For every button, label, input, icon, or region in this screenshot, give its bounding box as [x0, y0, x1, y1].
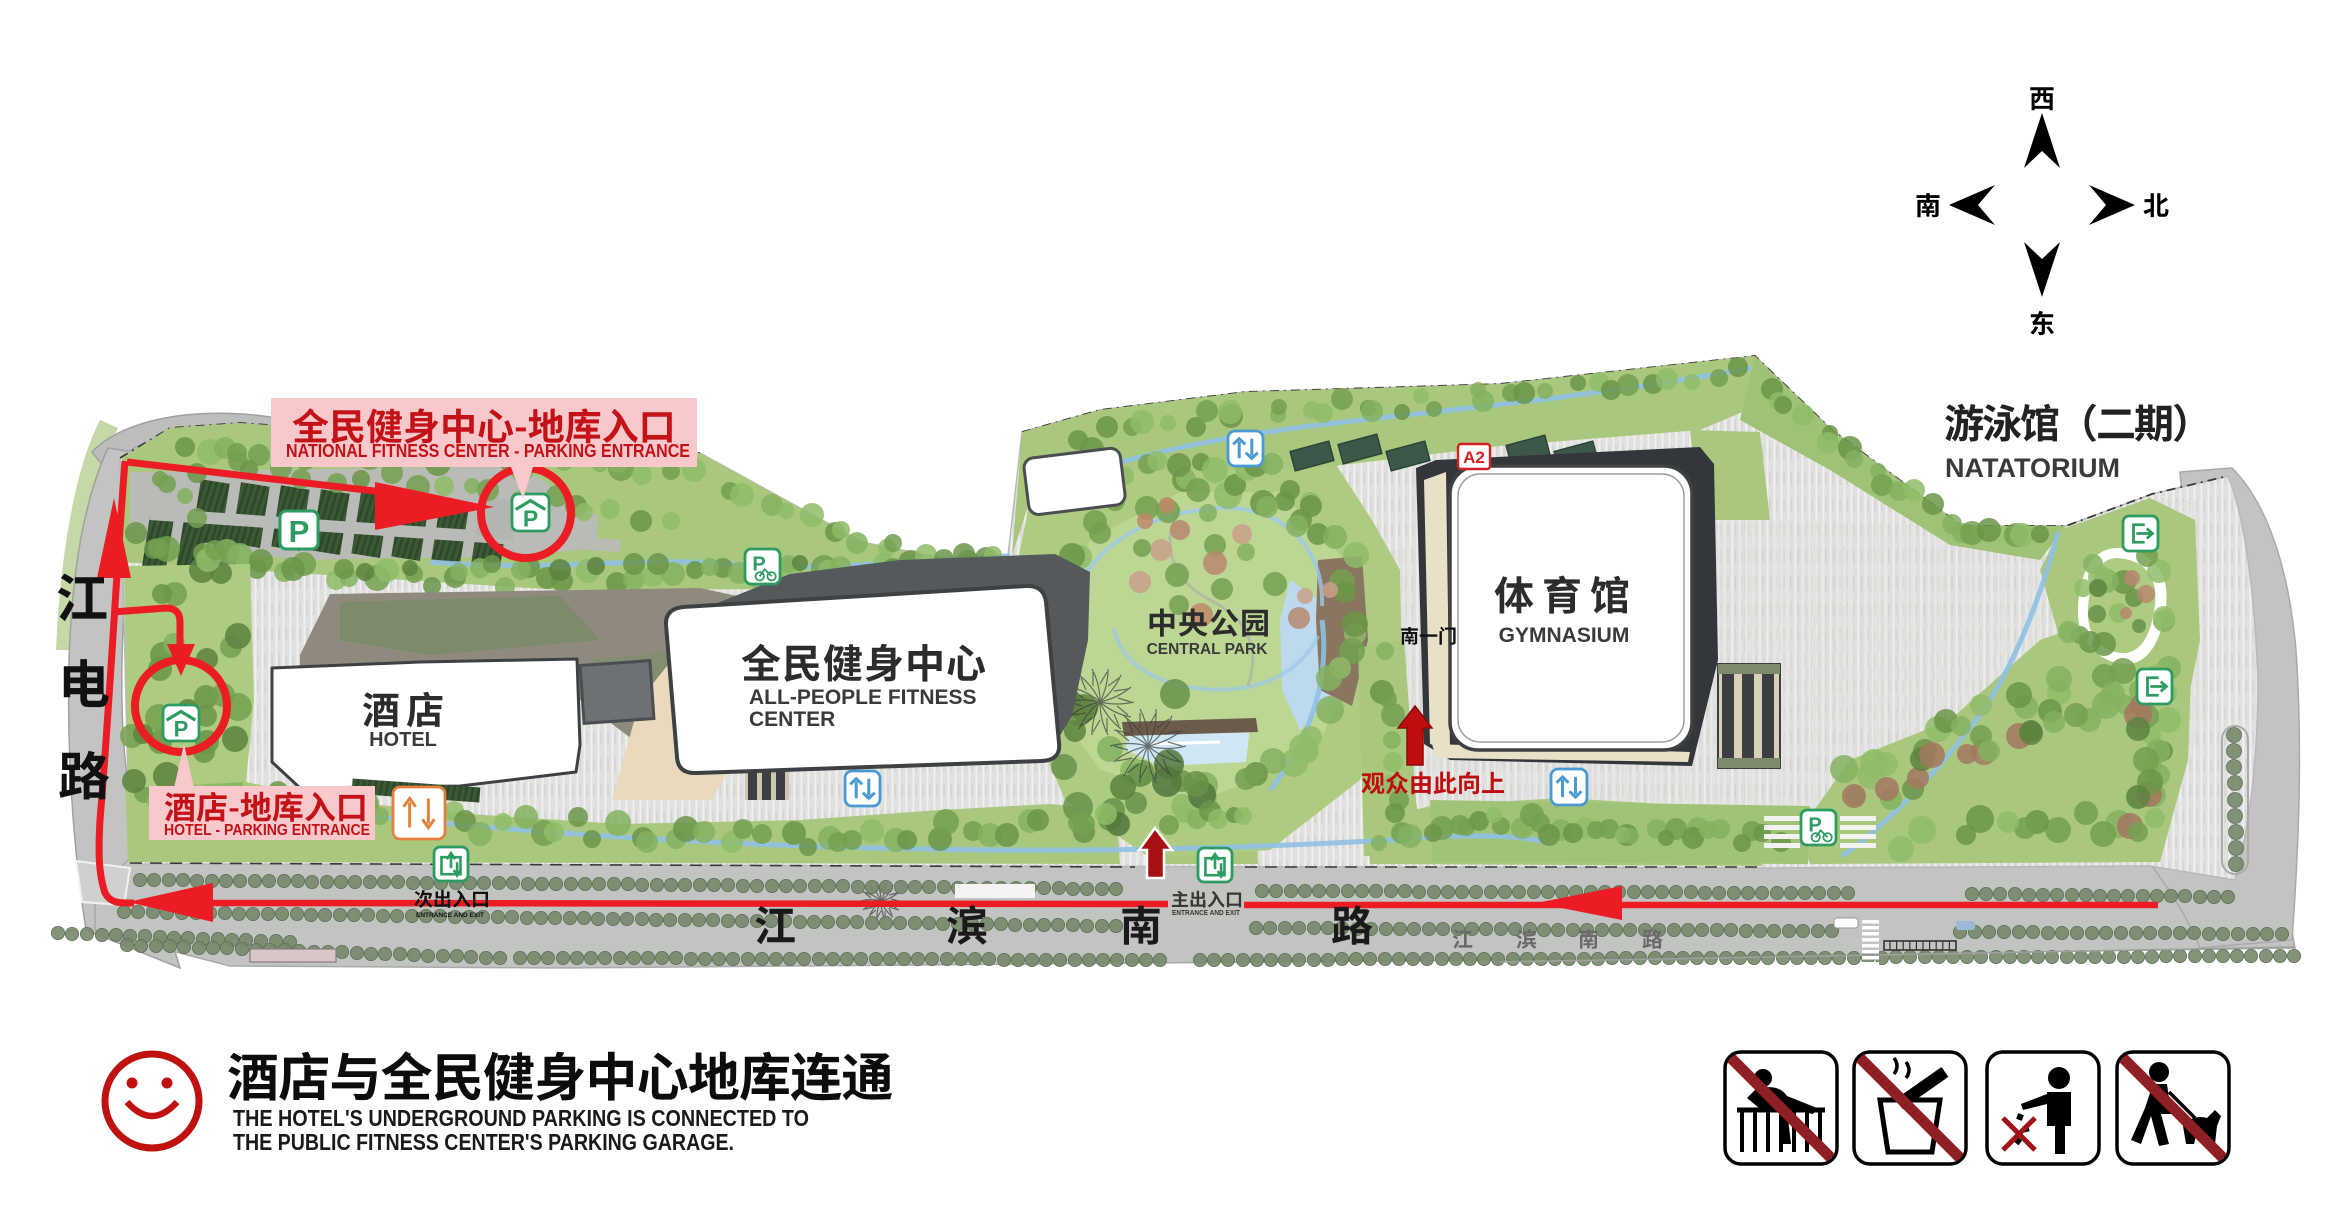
- svg-text:CENTRAL PARK: CENTRAL PARK: [1147, 641, 1269, 658]
- svg-text:ALL-PEOPLE FITNESS: ALL-PEOPLE FITNESS: [749, 686, 977, 709]
- svg-text:GYMNASIUM: GYMNASIUM: [1499, 624, 1630, 647]
- svg-text:CENTER: CENTER: [749, 708, 835, 731]
- svg-text:THE PUBLIC FITNESS CENTER'S PA: THE PUBLIC FITNESS CENTER'S PARKING GARA…: [233, 1129, 734, 1155]
- svg-text:HOTEL - PARKING ENTRANCE: HOTEL - PARKING ENTRANCE: [164, 822, 370, 839]
- svg-text:P: P: [174, 717, 189, 742]
- svg-text:HOTEL: HOTEL: [369, 729, 437, 751]
- svg-text:ENTRANCE AND EXIT: ENTRANCE AND EXIT: [1172, 908, 1240, 917]
- svg-text:NATATORIUM: NATATORIUM: [1945, 453, 2120, 483]
- svg-text:ENTRANCE AND EXIT: ENTRANCE AND EXIT: [416, 912, 484, 919]
- svg-text:THE HOTEL'S UNDERGROUND PARKIN: THE HOTEL'S UNDERGROUND PARKING IS CONNE…: [233, 1105, 809, 1131]
- svg-text:NATIONAL FITNESS CENTER - PARK: NATIONAL FITNESS CENTER - PARKING ENTRAN…: [286, 440, 690, 461]
- svg-text:P: P: [523, 506, 538, 532]
- svg-text:A2: A2: [1463, 448, 1485, 467]
- svg-text:P: P: [289, 514, 310, 549]
